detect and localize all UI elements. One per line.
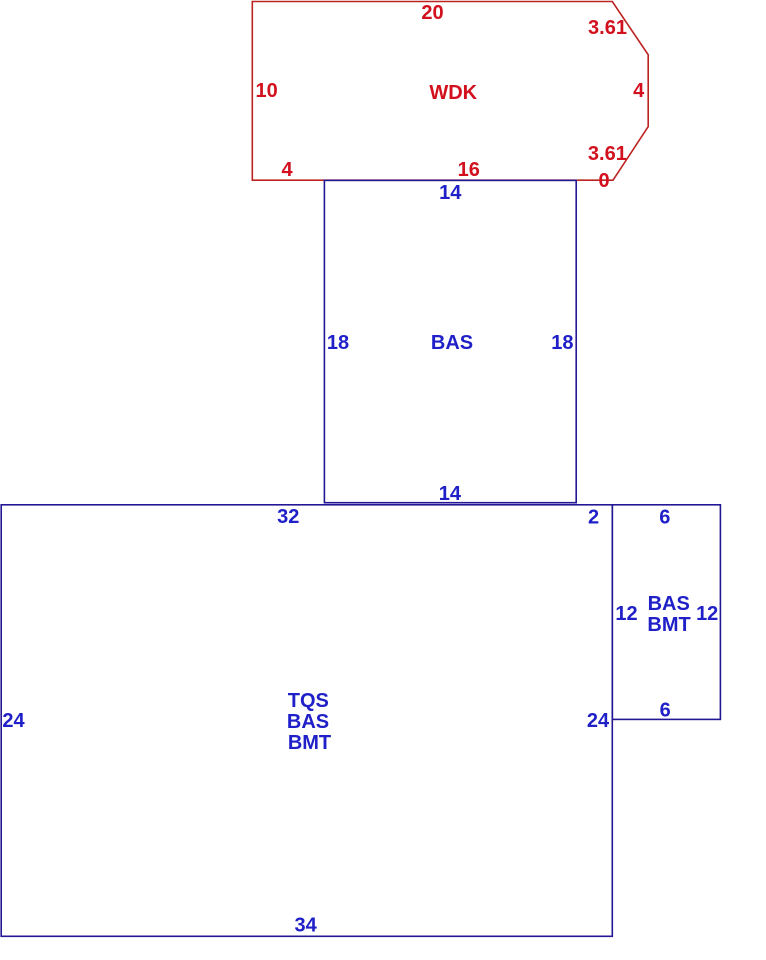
svg-text:TQS: TQS <box>288 690 329 712</box>
svg-text:4: 4 <box>633 80 645 102</box>
svg-text:12: 12 <box>615 603 637 625</box>
svg-text:20: 20 <box>421 2 443 24</box>
svg-text:6: 6 <box>660 700 671 722</box>
svg-text:2: 2 <box>588 507 599 529</box>
svg-text:BMT: BMT <box>288 732 331 754</box>
svg-text:16: 16 <box>458 159 480 181</box>
svg-text:18: 18 <box>551 332 573 354</box>
svg-text:14: 14 <box>439 483 462 505</box>
svg-text:3.61: 3.61 <box>588 143 627 165</box>
svg-text:BAS: BAS <box>287 711 329 733</box>
svg-text:6: 6 <box>659 507 670 529</box>
svg-text:BMT: BMT <box>647 614 690 636</box>
svg-text:34: 34 <box>294 915 317 937</box>
svg-text:3.61: 3.61 <box>588 17 627 39</box>
svg-text:BAS: BAS <box>648 593 690 615</box>
svg-text:32: 32 <box>277 506 299 528</box>
svg-text:14: 14 <box>439 182 462 204</box>
svg-text:18: 18 <box>327 332 349 354</box>
svg-text:12: 12 <box>696 603 718 625</box>
svg-text:24: 24 <box>587 710 610 732</box>
svg-text:10: 10 <box>255 80 277 102</box>
svg-text:4: 4 <box>281 159 293 181</box>
svg-text:24: 24 <box>2 710 25 732</box>
svg-text:BAS: BAS <box>431 332 473 354</box>
svg-text:0: 0 <box>599 170 610 192</box>
svg-text:WDK: WDK <box>429 82 477 104</box>
